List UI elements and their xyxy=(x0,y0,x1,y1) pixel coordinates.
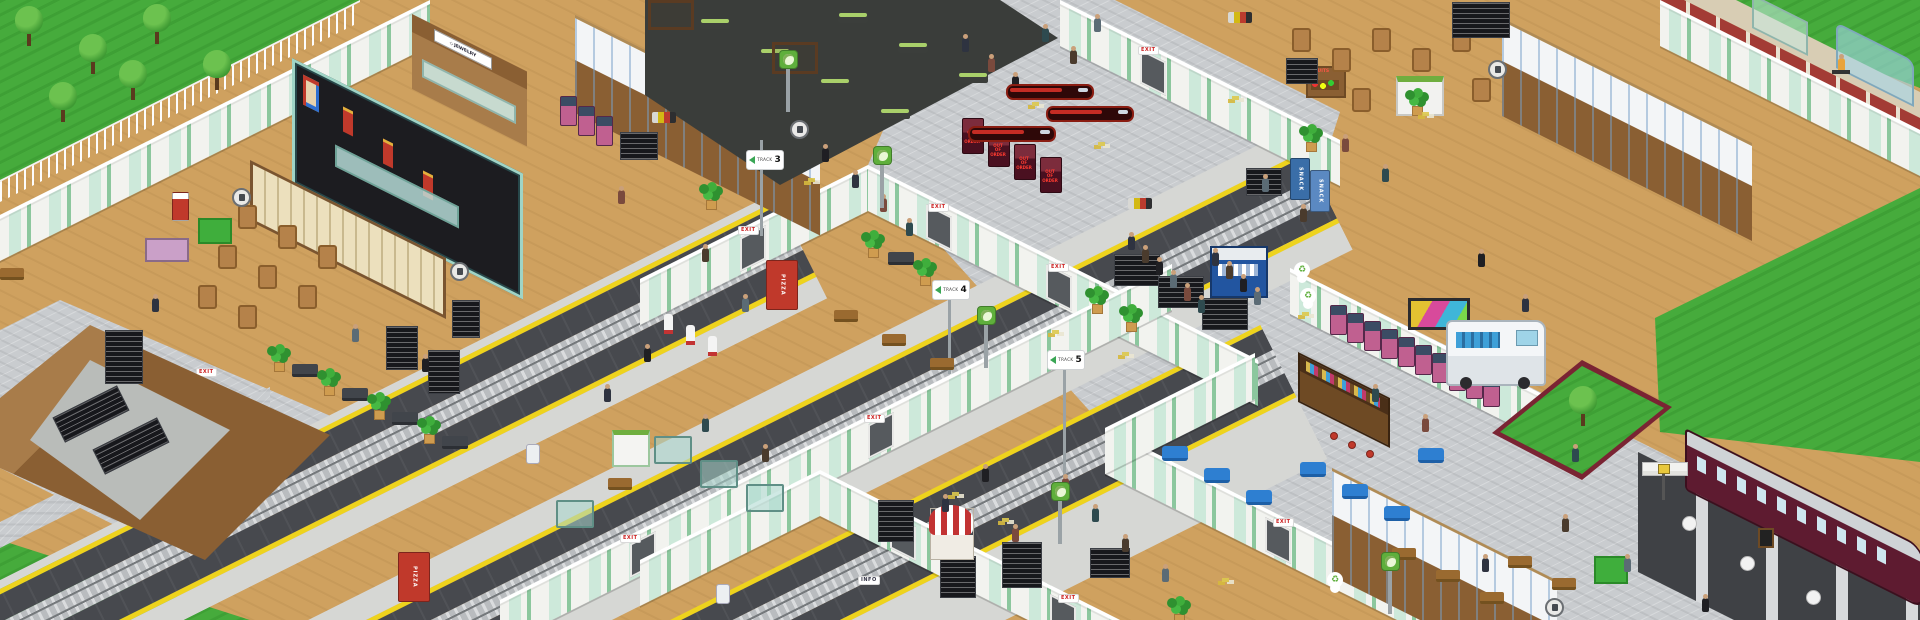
snack-vending-machine[interactable]: SNACK xyxy=(1310,170,1330,212)
bench[interactable] xyxy=(1436,570,1460,582)
passenger xyxy=(982,468,989,482)
passenger xyxy=(1226,265,1233,279)
lounge-bench[interactable] xyxy=(838,12,868,23)
passenger xyxy=(618,190,625,204)
lockers-icon xyxy=(232,188,251,207)
waiting-sofa[interactable] xyxy=(238,205,257,229)
exit-sign: EXIT xyxy=(864,414,885,423)
truck-window xyxy=(1456,332,1500,348)
platform-bench-dark[interactable] xyxy=(292,364,318,377)
passenger xyxy=(702,418,709,432)
waiting-sofa[interactable] xyxy=(218,245,237,269)
passenger xyxy=(702,248,709,262)
clock-post xyxy=(880,162,884,208)
exit-sign: EXIT xyxy=(928,203,949,212)
newspaper-rack xyxy=(1218,264,1258,276)
clothes-rack[interactable] xyxy=(343,106,353,136)
departure-board[interactable] xyxy=(940,556,976,598)
passenger xyxy=(1522,298,1529,312)
passenger xyxy=(1562,518,1569,532)
platform-bench-dark[interactable] xyxy=(442,436,468,449)
litter[interactable] xyxy=(1122,352,1129,356)
clock-icon xyxy=(1381,552,1400,571)
turnstile-gate[interactable] xyxy=(686,325,695,345)
ticket-machine[interactable] xyxy=(1364,321,1381,351)
recycle-pin-marker: ♻ xyxy=(1300,288,1316,304)
passenger xyxy=(1128,236,1135,250)
platform-bench-dark[interactable] xyxy=(342,388,368,401)
waiting-sofa[interactable] xyxy=(198,285,217,309)
platform-bench[interactable] xyxy=(930,358,954,370)
waiting-sofa[interactable] xyxy=(258,265,277,289)
ticket-machine-broken[interactable]: OUT OF ORDER xyxy=(1014,144,1036,180)
snack-vending-machine[interactable]: SNACK xyxy=(1290,158,1310,200)
bar-stool[interactable] xyxy=(1348,441,1356,449)
info-terminal[interactable] xyxy=(1286,58,1318,84)
turnstile-gate[interactable] xyxy=(664,314,673,334)
passenger xyxy=(152,298,159,312)
departure-board[interactable] xyxy=(452,300,480,338)
ticket-machine[interactable] xyxy=(1398,337,1415,367)
toilets-icon xyxy=(1488,60,1507,79)
recycle-pin-marker: ♻ xyxy=(1294,262,1310,278)
potted-palm[interactable] xyxy=(268,348,288,372)
clock-post xyxy=(786,66,790,112)
passenger xyxy=(1162,568,1169,582)
atm-machine[interactable] xyxy=(578,106,595,136)
platform-shelter[interactable] xyxy=(746,484,784,512)
departure-board[interactable] xyxy=(386,326,418,370)
track-4-sign: TRACK 4 xyxy=(932,280,970,300)
terrace-table[interactable] xyxy=(1806,590,1821,605)
pergola[interactable] xyxy=(648,0,694,30)
passenger xyxy=(1572,448,1579,462)
passenger xyxy=(1382,168,1389,182)
atm-machine[interactable] xyxy=(560,96,577,126)
exit-sign: EXIT xyxy=(1138,46,1159,55)
passenger xyxy=(1372,388,1379,402)
potted-palm[interactable] xyxy=(1168,600,1188,620)
cleaning-robot[interactable] xyxy=(716,584,730,604)
passenger xyxy=(1042,28,1049,42)
clock-icon xyxy=(779,50,798,69)
arrow-icon xyxy=(935,286,941,294)
pizza-vending-machine[interactable]: PIZZA xyxy=(398,552,430,602)
bench[interactable] xyxy=(1480,592,1504,604)
terrace-table[interactable] xyxy=(1682,516,1697,531)
ticket-gate-bank[interactable] xyxy=(1114,254,1160,286)
potted-palm[interactable] xyxy=(368,396,388,420)
turnstile-gate[interactable] xyxy=(708,336,717,356)
ticket-machine[interactable] xyxy=(1415,345,1432,375)
passenger xyxy=(1482,558,1489,572)
platform-bench-dark[interactable] xyxy=(888,252,914,265)
menu-board xyxy=(620,132,658,160)
tree xyxy=(202,50,232,90)
lounge-bench[interactable] xyxy=(898,42,928,53)
passenger xyxy=(852,174,859,188)
wheel xyxy=(1460,377,1472,389)
potted-palm[interactable] xyxy=(318,372,338,396)
passenger xyxy=(988,58,995,72)
display-board xyxy=(303,74,319,112)
passenger xyxy=(942,498,949,512)
clock-post xyxy=(984,322,988,368)
passenger xyxy=(1142,249,1149,263)
passenger xyxy=(1702,598,1709,612)
toilets-icon xyxy=(1545,598,1564,617)
blue-sofa[interactable] xyxy=(1418,448,1444,463)
platform-bench[interactable] xyxy=(0,268,24,280)
platform-bench[interactable] xyxy=(834,310,858,322)
recycling-bins[interactable] xyxy=(1228,12,1252,23)
passenger xyxy=(1262,178,1269,192)
ticket-machine[interactable] xyxy=(1381,329,1398,359)
potted-palm[interactable] xyxy=(914,262,934,286)
bench[interactable] xyxy=(1552,578,1576,590)
repair-progress-tooltip xyxy=(1046,106,1134,122)
blue-sofa[interactable] xyxy=(1384,506,1410,521)
lounge-bench[interactable] xyxy=(958,72,988,83)
waiting-sofa[interactable] xyxy=(298,285,317,309)
litter[interactable] xyxy=(1098,142,1105,146)
passenger xyxy=(1156,261,1163,275)
passenger xyxy=(962,38,969,52)
passenger xyxy=(742,298,749,312)
bench[interactable] xyxy=(1508,556,1532,568)
tree xyxy=(118,60,148,100)
litter[interactable] xyxy=(1032,102,1039,106)
litter[interactable] xyxy=(1222,578,1229,582)
passenger xyxy=(1094,18,1101,32)
blue-sofa[interactable] xyxy=(1204,468,1230,483)
exit-sign: EXIT xyxy=(1048,263,1069,272)
waiting-sofa[interactable] xyxy=(318,245,337,269)
bar-stool[interactable] xyxy=(1330,432,1338,440)
clothes-rack[interactable] xyxy=(383,138,393,168)
ticket-machine-broken[interactable]: OUT OF ORDER xyxy=(1040,157,1062,193)
sign-pole xyxy=(1063,358,1066,478)
passenger xyxy=(1170,274,1177,288)
tree xyxy=(48,82,78,122)
tree xyxy=(14,6,44,46)
lounge-bench[interactable] xyxy=(880,108,910,119)
potted-palm[interactable] xyxy=(1086,290,1106,314)
litter[interactable] xyxy=(1232,96,1239,100)
waiting-sofa[interactable] xyxy=(278,225,297,249)
clock-icon xyxy=(977,306,996,325)
jewelry-counter[interactable] xyxy=(422,59,516,124)
potted-palm[interactable] xyxy=(1300,128,1320,152)
ticket-gate-bank[interactable] xyxy=(1202,298,1248,330)
waiting-sofa[interactable] xyxy=(1332,48,1351,72)
cafe-tv-screen[interactable] xyxy=(105,330,143,384)
track-3-sign: TRACK 3 xyxy=(746,150,784,170)
ticket-machine[interactable] xyxy=(1330,305,1347,335)
passenger xyxy=(762,448,769,462)
passenger xyxy=(1624,558,1631,572)
passenger xyxy=(1092,508,1099,522)
exit-sign: EXIT xyxy=(1058,594,1079,603)
recycling-bins[interactable] xyxy=(652,112,676,123)
cleaning-robot[interactable] xyxy=(526,444,540,464)
litter[interactable] xyxy=(1052,330,1059,334)
clock-icon xyxy=(873,146,892,165)
litter[interactable] xyxy=(808,178,815,182)
litter[interactable] xyxy=(1002,518,1009,522)
potted-palm[interactable] xyxy=(1120,308,1140,332)
blue-sofa[interactable] xyxy=(1300,462,1326,477)
waiting-sofa[interactable] xyxy=(1352,88,1371,112)
striped-awning xyxy=(929,505,973,535)
tree xyxy=(78,34,108,74)
potted-palm[interactable] xyxy=(418,420,438,444)
platform-shelter[interactable] xyxy=(556,500,594,528)
blue-sofa[interactable] xyxy=(1246,490,1272,505)
passenger xyxy=(644,348,651,362)
bicycle xyxy=(1832,70,1850,72)
drinks-vending-machine[interactable] xyxy=(172,192,189,221)
bar-stool[interactable] xyxy=(1366,450,1374,458)
departure-board[interactable] xyxy=(1002,542,1042,588)
passenger xyxy=(1254,291,1261,305)
litter[interactable] xyxy=(1422,112,1429,116)
passenger xyxy=(1300,208,1307,222)
wheel xyxy=(1518,377,1530,389)
passenger xyxy=(1070,50,1077,64)
potted-palm[interactable] xyxy=(862,234,882,258)
food-truck[interactable] xyxy=(1446,320,1546,386)
exit-sign: EXIT xyxy=(1273,518,1294,527)
passenger xyxy=(1212,252,1219,266)
passenger xyxy=(604,388,611,402)
recycle-pin-marker: ♻ xyxy=(1327,572,1343,588)
lockers-icon xyxy=(450,262,469,281)
passenger xyxy=(1342,138,1349,152)
info-sign: INFO xyxy=(858,576,880,585)
atm-machine[interactable] xyxy=(596,116,613,146)
tree xyxy=(142,4,172,44)
arrow-icon xyxy=(1050,356,1056,364)
merch-stand[interactable] xyxy=(1594,556,1628,584)
recycling-bins[interactable] xyxy=(1128,198,1152,209)
platform-shelter[interactable] xyxy=(700,460,738,488)
cashier-desk[interactable] xyxy=(145,238,189,262)
departure-board[interactable] xyxy=(428,350,460,394)
repair-progress-tooltip xyxy=(968,126,1056,142)
waiting-sofa[interactable] xyxy=(1372,28,1391,52)
passenger xyxy=(422,358,429,372)
passenger xyxy=(1012,528,1019,542)
passenger xyxy=(1422,418,1429,432)
blue-sofa[interactable] xyxy=(1162,446,1188,461)
passenger xyxy=(352,328,359,342)
terrace-lamp-head xyxy=(1658,464,1670,474)
toilets-icon xyxy=(790,120,809,139)
platform-snack-stand[interactable] xyxy=(612,430,650,467)
litter[interactable] xyxy=(1302,312,1309,316)
passenger xyxy=(906,222,913,236)
passenger xyxy=(1198,299,1205,313)
menu-chalkboard[interactable] xyxy=(1758,528,1774,548)
passenger xyxy=(1240,278,1247,292)
exit-sign: EXIT xyxy=(620,534,641,543)
clock-post xyxy=(1058,498,1062,544)
lounge-bench[interactable] xyxy=(820,78,850,89)
track-5-sign: TRACK 5 xyxy=(1047,350,1085,370)
lockers-dark[interactable] xyxy=(1452,2,1510,38)
waiting-sofa[interactable] xyxy=(1472,78,1491,102)
waiting-sofa[interactable] xyxy=(1412,48,1431,72)
ice-cream-kiosk[interactable] xyxy=(930,508,974,560)
platform-bench[interactable] xyxy=(882,334,906,346)
passenger xyxy=(1478,253,1485,267)
platform-bench[interactable] xyxy=(608,478,632,490)
clock-icon xyxy=(1051,482,1070,501)
departure-board[interactable] xyxy=(878,500,914,542)
terrace-table[interactable] xyxy=(1740,556,1755,571)
truck-cab-glass xyxy=(1516,330,1538,346)
platform-shelter[interactable] xyxy=(654,436,692,464)
repair-progress-tooltip xyxy=(1006,84,1094,100)
terrace-lamp xyxy=(1662,470,1665,500)
ticket-machine[interactable] xyxy=(1347,313,1364,343)
potted-palm[interactable] xyxy=(700,186,720,210)
passenger xyxy=(1184,287,1191,301)
blue-sofa[interactable] xyxy=(1342,484,1368,499)
info-terminal[interactable] xyxy=(1090,548,1130,578)
waiting-sofa[interactable] xyxy=(238,305,257,329)
pizza-vending-machine[interactable]: PIZZA xyxy=(766,260,798,310)
passenger xyxy=(1122,538,1129,552)
jewelry-sign: ◇ JEWELRY xyxy=(434,29,492,70)
station-scene: EXIT EXIT EXIT EXIT EXIT EXIT EXIT EXIT … xyxy=(0,0,1920,620)
plaza-tree xyxy=(1568,386,1598,426)
lounge-bench[interactable] xyxy=(700,18,730,29)
platform-bench-dark[interactable] xyxy=(392,412,418,425)
passenger xyxy=(822,148,829,162)
litter[interactable] xyxy=(952,492,959,496)
clock-post xyxy=(1388,568,1392,614)
arrow-icon xyxy=(749,156,755,164)
waiting-sofa[interactable] xyxy=(1292,28,1311,52)
exit-sign: EXIT xyxy=(738,226,759,235)
merch-stand[interactable] xyxy=(198,218,232,244)
diamond-icon: ◇ xyxy=(450,40,453,47)
